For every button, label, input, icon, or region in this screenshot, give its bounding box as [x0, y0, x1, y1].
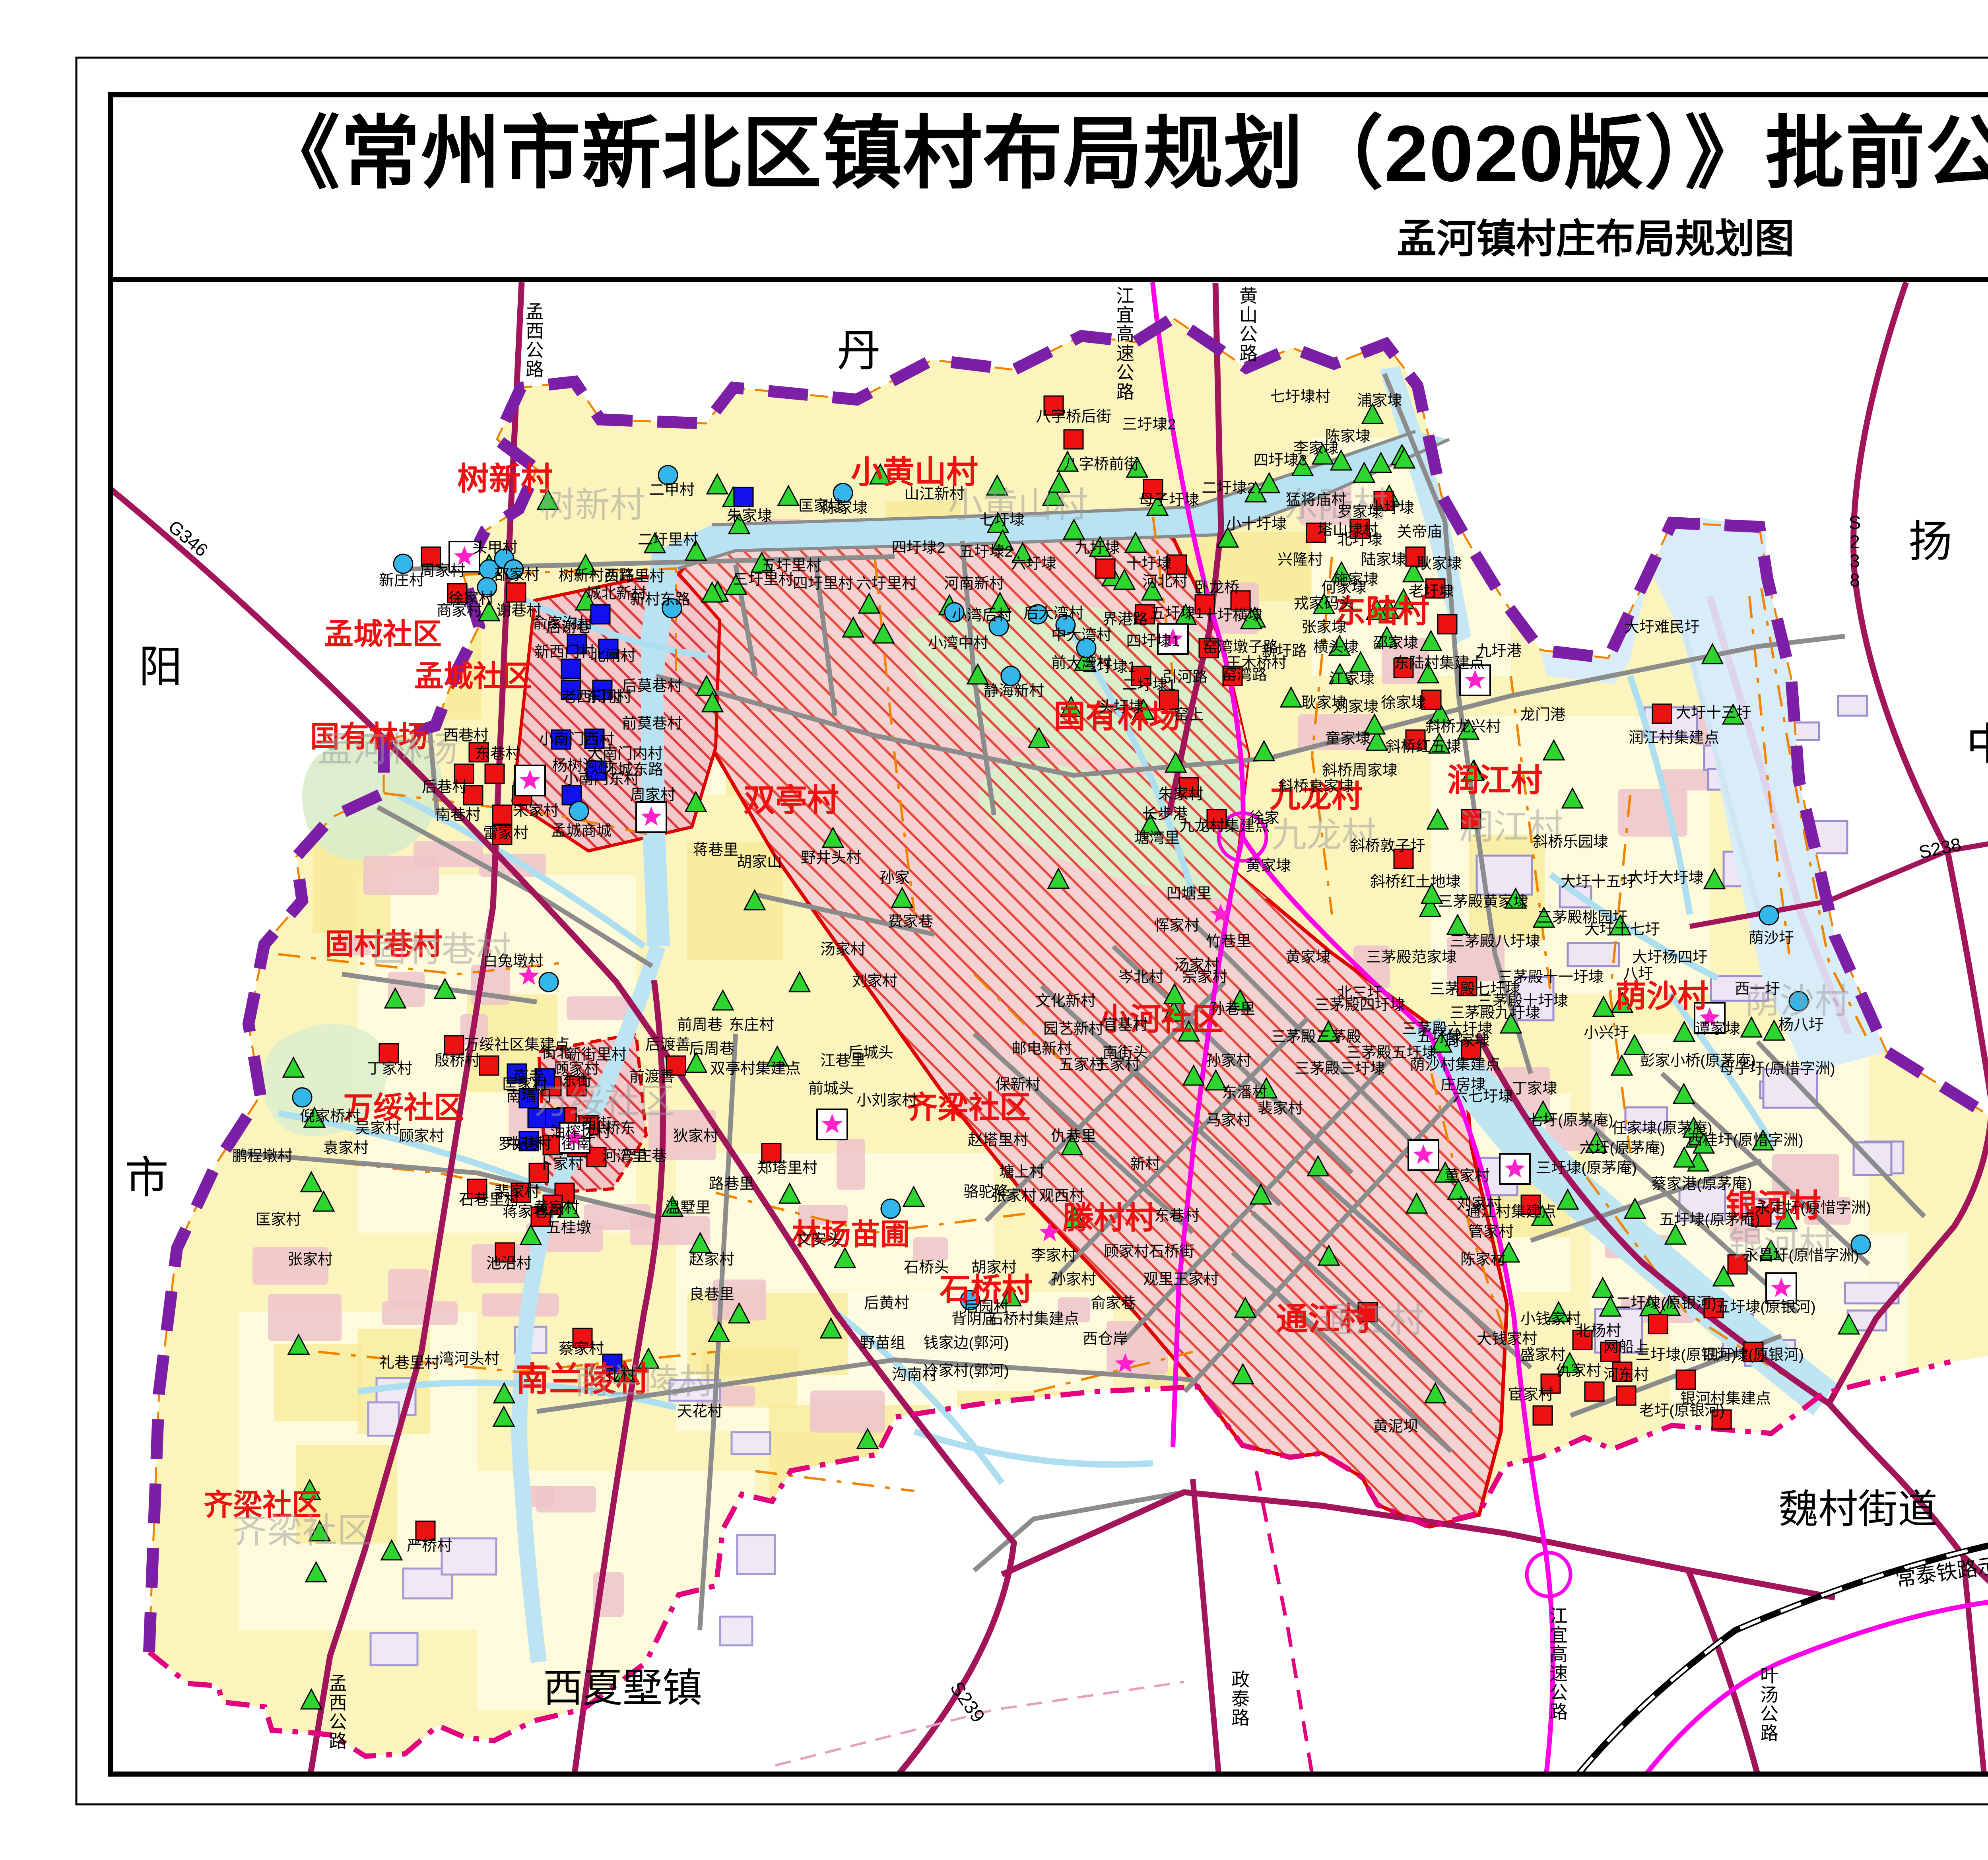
- svg-text:西一圩: 西一圩: [1735, 981, 1780, 998]
- svg-text:前渡善: 前渡善: [629, 1068, 675, 1085]
- svg-text:鹏程墩村: 鹏程墩村: [232, 1148, 293, 1165]
- svg-text:七圩(原茅庵): 七圩(原茅庵): [1528, 1112, 1613, 1129]
- svg-text:周家村: 周家村: [420, 563, 465, 579]
- svg-text:后莫巷村: 后莫巷村: [622, 678, 682, 695]
- svg-text:路巷里: 路巷里: [709, 1176, 754, 1192]
- svg-text:凹塘里: 凹塘里: [1166, 885, 1211, 902]
- svg-text:杨八圩: 杨八圩: [1778, 1017, 1824, 1033]
- svg-text:东陆村集建点: 东陆村集建点: [1394, 655, 1485, 672]
- svg-text:郑塔里村: 郑塔里村: [757, 1160, 817, 1177]
- svg-text:东街: 东街: [561, 1072, 592, 1089]
- svg-text:北杨村: 北杨村: [1576, 1323, 1621, 1340]
- svg-text:西夏墅镇: 西夏墅镇: [543, 1666, 702, 1711]
- svg-text:观西村: 观西村: [1039, 1188, 1084, 1204]
- svg-text:新街里村: 新街里村: [566, 1046, 627, 1063]
- svg-text:西巷村: 西巷村: [443, 727, 489, 744]
- svg-text:三茅殿九圩埭: 三茅殿九圩埭: [1450, 1005, 1540, 1021]
- svg-text:孟西公路: 孟西公路: [526, 301, 544, 380]
- svg-text:头甲村: 头甲村: [472, 540, 518, 556]
- svg-text:良巷里: 良巷里: [689, 1286, 734, 1303]
- svg-text:滕村村: 滕村村: [1063, 1200, 1156, 1235]
- svg-text:小湾后村: 小湾后村: [952, 607, 1012, 624]
- svg-text:北圩埭: 北圩埭: [1337, 532, 1382, 548]
- svg-text:九圩港: 九圩港: [1476, 643, 1522, 660]
- svg-text:三圩埭(原茅庵): 三圩埭(原茅庵): [1536, 1160, 1637, 1177]
- svg-text:宦家村: 宦家村: [1508, 1386, 1553, 1403]
- svg-text:永定圩(原惜字洲): 永定圩(原惜字洲): [1755, 1200, 1871, 1216]
- svg-text:童家埭: 童家埭: [1325, 730, 1371, 747]
- svg-text:塘湾里: 塘湾里: [1134, 830, 1180, 847]
- svg-text:荫沙村集建点: 荫沙村集建点: [1410, 1056, 1501, 1073]
- svg-text:后大湾村: 后大湾村: [1023, 605, 1084, 622]
- svg-text:东巷村: 东巷村: [475, 746, 520, 762]
- svg-text:朱家埭: 朱家埭: [727, 508, 772, 524]
- svg-text:后巷村: 后巷村: [422, 779, 467, 796]
- svg-text:裴家村: 裴家村: [1258, 1100, 1303, 1117]
- svg-text:匡家村: 匡家村: [256, 1212, 301, 1228]
- svg-text:孙巷里: 孙巷里: [1210, 1001, 1255, 1017]
- svg-text:九圩埭: 九圩埭: [1075, 540, 1120, 556]
- svg-text:庄房埭: 庄房埭: [1441, 1076, 1486, 1093]
- svg-text:赵家村: 赵家村: [689, 1251, 734, 1268]
- svg-text:蒋家巷村: 蒋家巷村: [503, 1204, 563, 1220]
- svg-text:小钱家村: 小钱家村: [1520, 1311, 1581, 1328]
- svg-text:龙门港: 龙门港: [1520, 707, 1565, 723]
- svg-text:王家村: 王家村: [1095, 1056, 1140, 1073]
- svg-text:斜桥袁家埭: 斜桥袁家埭: [1278, 778, 1354, 795]
- svg-text:头圩埭: 头圩埭: [1099, 699, 1144, 715]
- svg-text:小兴圩: 小兴圩: [1584, 1025, 1629, 1041]
- svg-text:孟西公路: 孟西公路: [329, 1673, 347, 1751]
- svg-text:三圩里村: 三圩里村: [733, 571, 794, 588]
- svg-text:文安头: 文安头: [796, 1231, 842, 1248]
- svg-text:园艺新村: 园艺新村: [1043, 1021, 1104, 1037]
- svg-text:保新村: 保新村: [995, 1076, 1041, 1093]
- svg-text:树新村: 树新村: [457, 461, 553, 497]
- svg-text:十圩横埭: 十圩横埭: [1202, 607, 1263, 624]
- svg-text:匡家埭: 匡家埭: [798, 498, 844, 515]
- svg-text:竹巷里: 竹巷里: [1206, 933, 1251, 950]
- svg-text:母子圩(原惜字洲): 母子圩(原惜字洲): [1719, 1060, 1835, 1077]
- svg-text:张家埭: 张家埭: [1301, 619, 1347, 636]
- svg-text:三圩埭2: 三圩埭2: [1122, 416, 1176, 433]
- svg-text:中大湾村: 中大湾村: [1051, 627, 1112, 644]
- svg-text:江巷里: 江巷里: [820, 1052, 866, 1069]
- svg-text:石桥头: 石桥头: [904, 1259, 949, 1276]
- svg-text:文化新村: 文化新村: [1035, 993, 1096, 1010]
- svg-text:叶汤公路: 叶汤公路: [1760, 1665, 1778, 1744]
- svg-text:三茅殿三茅殿: 三茅殿三茅殿: [1271, 1029, 1361, 1045]
- svg-text:东巷村: 东巷村: [1154, 1208, 1200, 1224]
- svg-text:二圩埭2: 二圩埭2: [1202, 480, 1255, 497]
- svg-text:润江村集建点: 润江村集建点: [1629, 730, 1719, 746]
- svg-text:蔡家村: 蔡家村: [559, 1341, 604, 1357]
- svg-text:后园村: 后园村: [963, 1299, 1009, 1316]
- svg-text:东潘村: 东潘村: [1222, 1084, 1267, 1101]
- svg-text:小十圩埭: 小十圩埭: [1226, 516, 1287, 532]
- svg-text:黄山公路: 黄山公路: [1239, 285, 1258, 364]
- svg-text:刘家埭: 刘家埭: [1333, 699, 1378, 715]
- svg-text:丁家村: 丁家村: [367, 1060, 412, 1077]
- svg-text:大圩杨四圩: 大圩杨四圩: [1632, 949, 1708, 966]
- svg-text:吴家村: 吴家村: [355, 1120, 400, 1137]
- svg-text:新庄村: 新庄村: [379, 572, 424, 589]
- svg-text:邮电新村: 邮电新村: [1011, 1041, 1072, 1057]
- svg-text:小圩埭: 小圩埭: [1369, 500, 1414, 516]
- svg-text:阳: 阳: [139, 643, 182, 691]
- svg-text:戎家码头: 戎家码头: [1294, 595, 1354, 612]
- svg-text:陈家村: 陈家村: [1460, 1251, 1506, 1268]
- svg-text:孙家村: 孙家村: [1206, 1052, 1251, 1069]
- svg-text:横头埭: 横头埭: [1313, 639, 1359, 656]
- svg-text:朱家村: 朱家村: [1158, 786, 1204, 803]
- svg-text:管家村: 管家村: [1468, 1223, 1514, 1240]
- svg-text:礼巷里村: 礼巷里村: [379, 1355, 440, 1371]
- svg-text:后渡善: 后渡善: [645, 1037, 691, 1053]
- svg-text:邵家村: 邵家村: [494, 567, 540, 583]
- svg-text:后周巷: 后周巷: [689, 1041, 734, 1057]
- svg-text:三茅殿黄家埭: 三茅殿黄家埭: [1438, 893, 1528, 910]
- svg-text:中: 中: [1966, 720, 1988, 769]
- svg-text:河东村: 河东村: [1604, 1367, 1649, 1383]
- svg-text:陈家埭: 陈家埭: [1325, 428, 1371, 445]
- svg-text:大圩十三圩: 大圩十三圩: [1676, 705, 1751, 721]
- svg-text:斜桥红五埭: 斜桥红五埭: [1386, 738, 1461, 755]
- svg-text:湾河头村: 湾河头村: [439, 1351, 499, 1367]
- svg-text:六圩埭: 六圩埭: [1011, 555, 1056, 572]
- svg-text:长步港: 长步港: [1142, 806, 1188, 823]
- svg-text:胡家村: 胡家村: [971, 1259, 1017, 1276]
- svg-text:三圩埭1: 三圩埭1: [1082, 659, 1136, 676]
- svg-text:黄泥坝: 黄泥坝: [1373, 1418, 1418, 1435]
- svg-text:严庄巷: 严庄巷: [621, 1148, 667, 1165]
- svg-text:新圩路: 新圩路: [1262, 643, 1307, 660]
- svg-text:河南新村: 河南新村: [944, 575, 1004, 592]
- svg-text:界港路: 界港路: [1103, 611, 1148, 628]
- svg-text:顾家村石桥街: 顾家村石桥街: [1104, 1243, 1194, 1260]
- svg-text:五圩埭(原银河): 五圩埭(原银河): [1715, 1299, 1815, 1316]
- svg-text:斜桥龙兴村: 斜桥龙兴村: [1425, 718, 1501, 735]
- svg-text:天花村: 天花村: [677, 1403, 722, 1420]
- svg-text:孟河林场: 孟河林场: [318, 730, 458, 769]
- svg-text:大圩大圩埭: 大圩大圩埭: [1628, 870, 1704, 886]
- svg-text:宋家村: 宋家村: [513, 803, 559, 819]
- svg-text:邵家埭: 邵家埭: [1373, 635, 1418, 652]
- svg-text:孟城社区: 孟城社区: [324, 617, 442, 650]
- svg-text:老圩(原银河): 老圩(原银河): [1639, 1402, 1724, 1419]
- svg-text:蒋巷里: 蒋巷里: [693, 842, 738, 858]
- svg-text:窑湾路: 窑湾路: [1222, 667, 1267, 683]
- svg-text:七圩埭: 七圩埭: [979, 512, 1025, 528]
- svg-text:四圩埭(原银河): 四圩埭(原银河): [1703, 1347, 1804, 1363]
- svg-text:二圩埭(原银河): 二圩埭(原银河): [1615, 1295, 1716, 1312]
- svg-text:新西门村: 新西门村: [534, 644, 595, 660]
- svg-text:顾家村: 顾家村: [399, 1128, 444, 1145]
- svg-text:孙家: 孙家: [879, 870, 910, 886]
- svg-text:南巷村: 南巷村: [435, 807, 481, 823]
- svg-text:山江新村: 山江新村: [904, 486, 965, 503]
- svg-text:江宜高速公路: 江宜高速公路: [1116, 285, 1134, 402]
- svg-text:江家埭: 江家埭: [1329, 671, 1375, 687]
- svg-text:官基村: 官基村: [1103, 1017, 1148, 1033]
- svg-text:齐梁社区: 齐梁社区: [232, 1511, 372, 1550]
- svg-text:狄家村: 狄家村: [673, 1128, 718, 1145]
- svg-text:斜桥红土地埭: 斜桥红土地埭: [1370, 874, 1461, 890]
- svg-text:润江村: 润江村: [1447, 763, 1543, 798]
- svg-text:李家村: 李家村: [1031, 1247, 1076, 1264]
- svg-text:引河路: 引河路: [1162, 669, 1208, 685]
- svg-text:大圩十五圩: 大圩十五圩: [1561, 874, 1636, 890]
- svg-text:观里王家村: 观里王家村: [1143, 1271, 1219, 1288]
- svg-text:张家村: 张家村: [287, 1251, 333, 1268]
- svg-text:新村: 新村: [1130, 1156, 1160, 1173]
- svg-text:市: 市: [125, 1153, 169, 1202]
- svg-text:斜桥周家埭: 斜桥周家埭: [1322, 762, 1398, 779]
- svg-text:谭家埭: 谭家埭: [1695, 1021, 1740, 1037]
- svg-text:北闸村: 北闸村: [590, 648, 636, 664]
- svg-text:九龙村集建点: 九龙村集建点: [1179, 818, 1270, 835]
- svg-text:雷家村: 雷家村: [483, 825, 528, 842]
- svg-text:温墅里: 温墅里: [665, 1200, 711, 1216]
- svg-text:永昌圩(原惜字洲): 永昌圩(原惜字洲): [1743, 1247, 1859, 1264]
- svg-text:岑北村: 岑北村: [1118, 969, 1164, 986]
- svg-text:马家村: 马家村: [1206, 1112, 1251, 1129]
- svg-text:汤家村: 汤家村: [820, 941, 866, 958]
- svg-text:袁家村: 袁家村: [323, 1140, 369, 1157]
- svg-text:大圩难民圩: 大圩难民圩: [1624, 619, 1700, 636]
- svg-text:十圩埭: 十圩埭: [1126, 555, 1172, 572]
- svg-text:孔村: 孔村: [605, 1367, 635, 1383]
- svg-text:五圩埭(原茅庵): 五圩埭(原茅庵): [1659, 1212, 1760, 1228]
- svg-text:七圩埭村: 七圩埭村: [1270, 388, 1330, 405]
- svg-text:仇家村: 仇家村: [1556, 1363, 1601, 1379]
- svg-text:池沿村: 池沿村: [486, 1255, 532, 1272]
- svg-text:二圩里村: 二圩里村: [638, 532, 698, 548]
- svg-text:兴隆村: 兴隆村: [1277, 551, 1323, 568]
- svg-text:六圩里村: 六圩里村: [856, 575, 917, 592]
- svg-text:费家巷: 费家巷: [888, 913, 933, 930]
- svg-text:塘上村: 塘上村: [999, 1164, 1044, 1180]
- svg-text:西仓岸: 西仓岸: [1083, 1331, 1128, 1347]
- svg-text:徐家埭: 徐家埭: [1381, 695, 1426, 711]
- svg-text:三茅殿三圩埭: 三茅殿三圩埭: [1295, 1060, 1385, 1077]
- svg-text:孟城社区: 孟城社区: [414, 660, 532, 693]
- svg-text:二甲村: 二甲村: [649, 482, 695, 499]
- svg-text:胡家山: 胡家山: [737, 854, 782, 870]
- svg-text:沟南村: 沟南村: [892, 1367, 937, 1383]
- svg-text:何家埭: 何家埭: [1321, 579, 1367, 596]
- svg-text:窑上: 窑上: [1174, 707, 1204, 723]
- svg-text:街南: 街南: [561, 1136, 592, 1153]
- svg-text:刘家村: 刘家村: [1456, 1196, 1502, 1212]
- svg-text:耿家埭: 耿家埭: [1417, 555, 1462, 572]
- svg-text:城北新村: 城北新村: [586, 585, 646, 602]
- svg-text:万绥社区: 万绥社区: [534, 1081, 674, 1121]
- svg-text:丹: 丹: [837, 326, 881, 375]
- svg-text:小黄山村: 小黄山村: [851, 454, 978, 490]
- svg-text:关帝庙: 关帝庙: [1397, 524, 1442, 540]
- svg-text:老圩埭: 老圩埭: [1409, 583, 1454, 600]
- svg-text:赵塔里村: 赵塔里村: [968, 1132, 1028, 1149]
- svg-text:卜家村: 卜家村: [538, 1156, 583, 1173]
- svg-text:南寺: 南寺: [514, 1068, 544, 1085]
- svg-text:孟城商城: 孟城商城: [551, 823, 612, 839]
- svg-text:卧龙桥: 卧龙桥: [1194, 579, 1239, 596]
- svg-text:黄家埭: 黄家埭: [1246, 858, 1291, 874]
- svg-text:西桂圩(原惜字洲): 西桂圩(原惜字洲): [1687, 1132, 1803, 1149]
- svg-text:黄家埭: 黄家埭: [1285, 949, 1331, 966]
- svg-text:小刘家村: 小刘家村: [856, 1092, 917, 1109]
- svg-text:俞家沟村: 俞家沟村: [532, 615, 593, 632]
- svg-text:双亭村: 双亭村: [744, 782, 839, 818]
- svg-text:前周巷: 前周巷: [677, 1017, 722, 1033]
- svg-text:小湾中村: 小湾中村: [928, 635, 988, 652]
- svg-text:白兔墩村: 白兔墩村: [483, 953, 543, 970]
- svg-text:骆驼降: 骆驼降: [963, 1184, 1009, 1200]
- svg-text:荫沙圩: 荫沙圩: [1749, 930, 1794, 947]
- svg-text:河北村: 河北村: [1142, 573, 1188, 590]
- svg-text:孟河镇村庄布局规划图: 孟河镇村庄布局规划图: [1397, 217, 1794, 261]
- svg-text:斜桥乐园埭: 斜桥乐园埭: [1533, 834, 1608, 850]
- svg-text:陆家埭: 陆家埭: [1361, 551, 1406, 568]
- svg-text:母子圩埭: 母子圩埭: [1139, 492, 1199, 509]
- svg-text:俞家巷: 俞家巷: [1091, 1295, 1136, 1312]
- svg-text:环城东路: 环城东路: [603, 761, 663, 778]
- svg-text:政泰路: 政泰路: [1231, 1669, 1250, 1728]
- svg-text:S238: S238: [1849, 512, 1861, 590]
- svg-text:周家村: 周家村: [630, 787, 676, 804]
- svg-text:桥东: 桥东: [605, 1120, 635, 1137]
- svg-text:扬: 扬: [1908, 517, 1952, 566]
- svg-text:四圩里村: 四圩里村: [793, 575, 853, 592]
- svg-text:八字桥后街: 八字桥后街: [1036, 408, 1111, 425]
- svg-text:南墙门: 南墙门: [506, 1088, 551, 1105]
- svg-text:北三圩: 北三圩: [1337, 985, 1382, 1002]
- svg-text:双亭村集建点: 双亭村集建点: [710, 1060, 801, 1077]
- svg-text:五圩埭1: 五圩埭1: [1150, 605, 1204, 622]
- svg-text:大圩十七圩: 大圩十七圩: [1584, 921, 1660, 938]
- svg-text:五桂墩: 五桂墩: [546, 1219, 591, 1236]
- svg-text:三茅殿八圩埭: 三茅殿八圩埭: [1450, 933, 1540, 950]
- svg-text:野苗组: 野苗组: [860, 1335, 905, 1351]
- svg-text:浦家埭: 浦家埭: [1357, 392, 1402, 409]
- svg-text:野井头村: 野井头村: [801, 850, 861, 866]
- svg-text:通江村: 通江村: [1319, 1300, 1424, 1340]
- svg-text:严桥村: 严桥村: [407, 1538, 452, 1554]
- svg-text:六圩(原茅庵): 六圩(原茅庵): [1579, 1140, 1665, 1157]
- svg-text:大钱家村: 大钱家村: [1477, 1331, 1537, 1347]
- svg-text:东庄村: 东庄村: [729, 1017, 774, 1033]
- svg-text:殷桥村: 殷桥村: [435, 1052, 480, 1069]
- svg-text:商家村: 商家村: [437, 602, 482, 619]
- svg-text:周家埭: 周家埭: [1444, 1033, 1490, 1049]
- svg-text:南兰陵村: 南兰陵村: [574, 1362, 714, 1401]
- svg-text:魏村街道: 魏村街道: [1778, 1487, 1938, 1532]
- svg-text:四圩埭2: 四圩埭2: [891, 540, 945, 556]
- svg-text:汤家村: 汤家村: [1174, 957, 1219, 974]
- svg-text:后黄村: 后黄村: [864, 1295, 909, 1312]
- svg-text:头圩里村: 头圩里村: [604, 568, 664, 585]
- svg-text:荫沙村: 荫沙村: [1615, 979, 1708, 1013]
- svg-text:三茅殿范家埭: 三茅殿范家埭: [1366, 949, 1457, 966]
- svg-text:刘家村: 刘家村: [852, 973, 897, 990]
- svg-text:江宜高速公路: 江宜高速公路: [1549, 1606, 1568, 1722]
- svg-text:钱家边(郭河): 钱家边(郭河): [923, 1335, 1009, 1351]
- svg-text:倪家桥村: 倪家桥村: [300, 1108, 360, 1125]
- svg-text:前城头: 前城头: [808, 1080, 854, 1097]
- svg-text:前莫巷村: 前莫巷村: [622, 715, 682, 732]
- svg-text:齐梁社区: 齐梁社区: [907, 1090, 1031, 1125]
- svg-text:五圩埭2: 五圩埭2: [959, 544, 1013, 560]
- svg-text:静海新村: 静海新村: [984, 683, 1044, 699]
- svg-text:树新村: 树新村: [540, 485, 645, 524]
- svg-text:仇巷里: 仇巷里: [1051, 1128, 1096, 1145]
- svg-text:《常州市新北区镇村布局规划（2020版）》批前公示: 《常州市新北区镇村布局规划（2020版）》批前公示: [260, 109, 1988, 198]
- svg-text:恽家村: 恽家村: [1154, 917, 1200, 934]
- svg-text:董家村: 董家村: [1444, 1168, 1490, 1184]
- svg-text:斜桥敦子圩: 斜桥敦子圩: [1350, 838, 1425, 854]
- svg-text:八字桥前街: 八字桥前街: [1064, 456, 1139, 473]
- svg-text:四圩埭1: 四圩埭1: [1126, 633, 1180, 650]
- svg-text:罗妃桥: 罗妃桥: [498, 1136, 544, 1153]
- svg-text:蔡家港(原茅庵): 蔡家港(原茅庵): [1651, 1176, 1752, 1192]
- svg-text:孙家村: 孙家村: [1051, 1271, 1096, 1288]
- svg-text:盛家村: 盛家村: [1520, 1347, 1565, 1363]
- svg-text:八圩: 八圩: [1623, 966, 1653, 982]
- svg-text:丁家埭: 丁家埭: [1512, 1080, 1557, 1097]
